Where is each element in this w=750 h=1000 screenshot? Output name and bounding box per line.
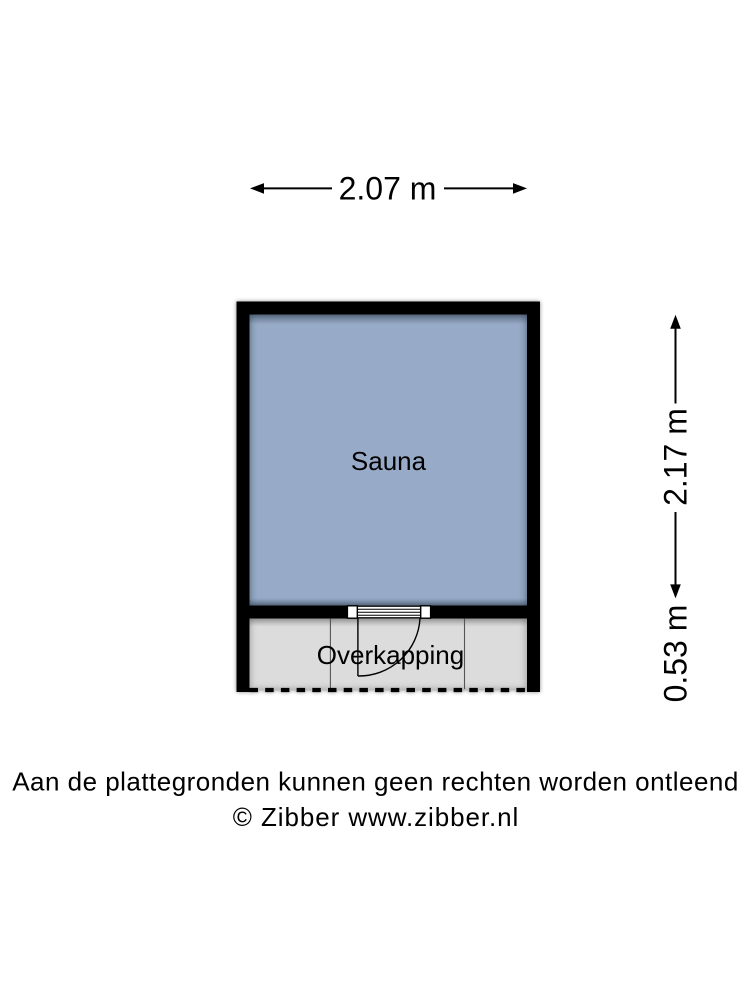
svg-text:Sauna: Sauna <box>351 446 427 476</box>
svg-text:Aan de plattegronden kunnen ge: Aan de plattegronden kunnen geen rechten… <box>12 767 739 797</box>
svg-text:2.17 m: 2.17 m <box>658 408 694 506</box>
svg-text:2.07 m: 2.07 m <box>339 171 437 207</box>
svg-text:© Zibber www.zibber.nl: © Zibber www.zibber.nl <box>233 802 520 832</box>
svg-text:0.53 m: 0.53 m <box>658 605 694 703</box>
svg-text:Overkapping: Overkapping <box>317 640 464 670</box>
